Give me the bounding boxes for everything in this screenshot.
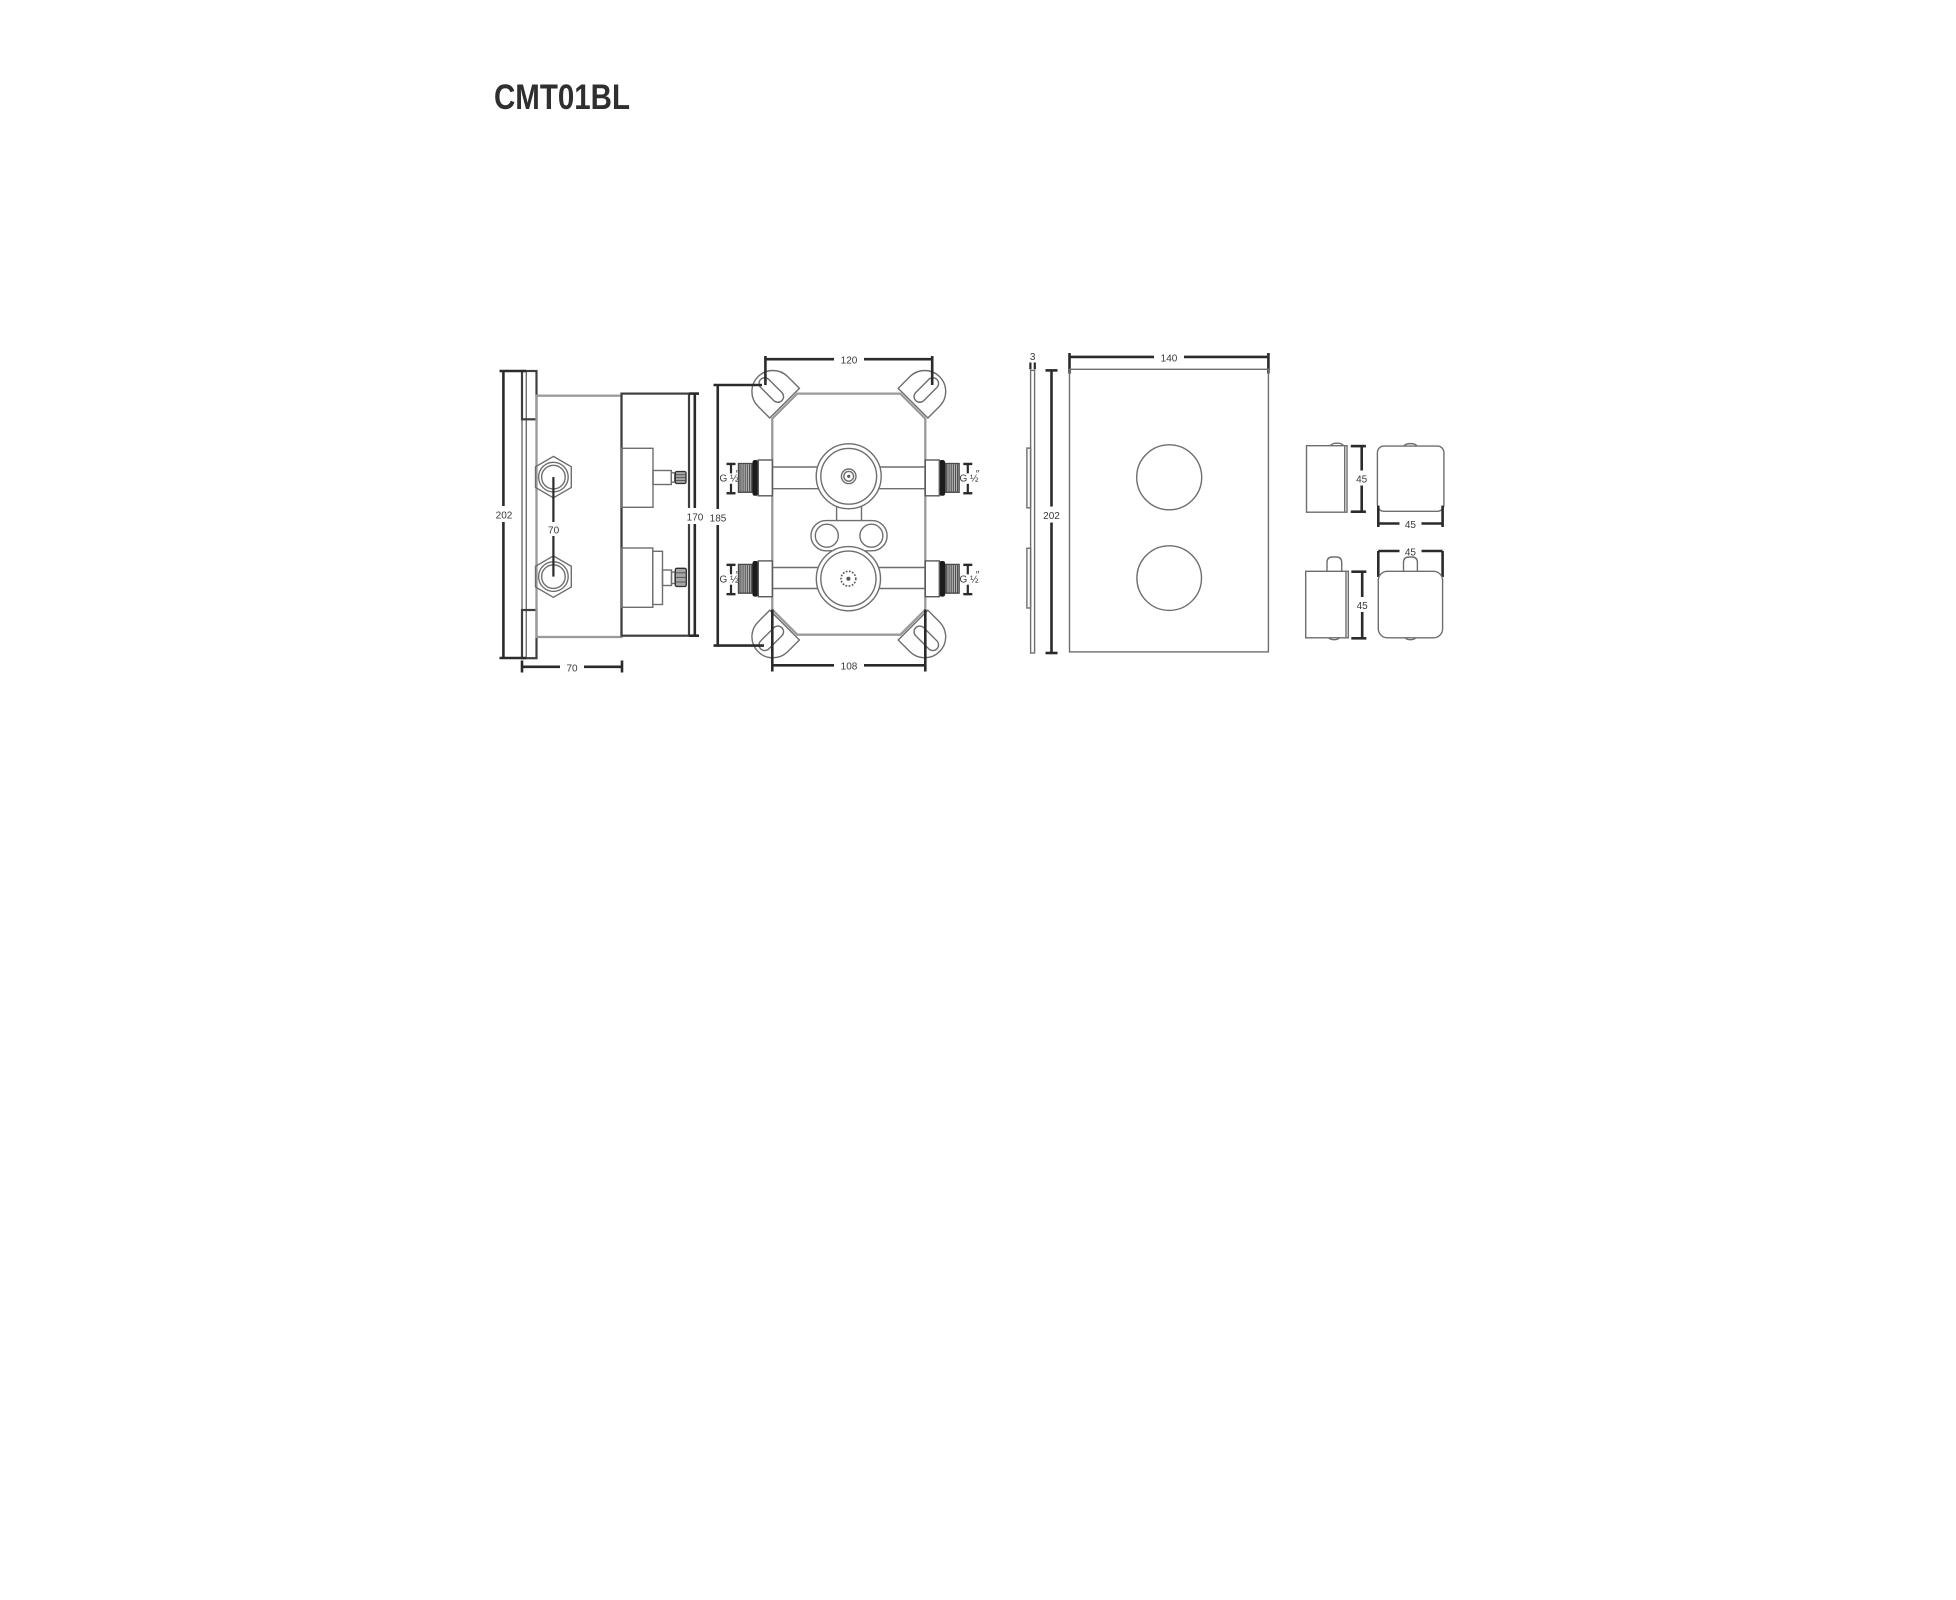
svg-text:70: 70 bbox=[548, 526, 560, 537]
svg-text:185: 185 bbox=[710, 514, 727, 525]
svg-text:170: 170 bbox=[687, 513, 704, 524]
svg-text:″: ″ bbox=[736, 469, 740, 480]
svg-text:″: ″ bbox=[976, 469, 980, 480]
svg-text:″: ″ bbox=[976, 570, 980, 581]
svg-text:202: 202 bbox=[496, 511, 513, 522]
svg-text:CMT01BL: CMT01BL bbox=[494, 77, 630, 117]
svg-text:″: ″ bbox=[736, 570, 740, 581]
svg-text:45: 45 bbox=[1405, 520, 1417, 531]
svg-text:45: 45 bbox=[1357, 601, 1369, 612]
svg-text:3: 3 bbox=[1030, 352, 1036, 363]
svg-text:70: 70 bbox=[566, 663, 578, 674]
svg-text:140: 140 bbox=[1161, 353, 1178, 364]
svg-text:108: 108 bbox=[841, 661, 858, 672]
svg-text:202: 202 bbox=[1043, 511, 1060, 522]
svg-text:120: 120 bbox=[841, 356, 858, 367]
svg-text:45: 45 bbox=[1356, 475, 1368, 486]
